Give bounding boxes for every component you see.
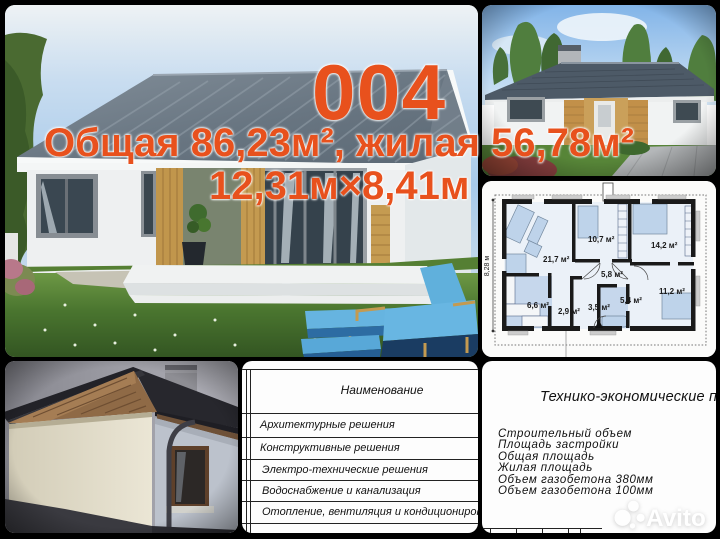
- svg-text:5,4 м²: 5,4 м²: [620, 296, 642, 305]
- svg-text:8,28 м: 8,28 м: [484, 256, 491, 277]
- svg-text:21,7 м²: 21,7 м²: [543, 255, 570, 264]
- svg-text:11,2 м²: 11,2 м²: [659, 287, 685, 296]
- svg-text:3,5 м²: 3,5 м²: [588, 303, 610, 312]
- svg-text:2,9 м²: 2,9 м²: [558, 307, 580, 316]
- svg-text:14,2 м²: 14,2 м²: [651, 241, 678, 250]
- svg-text:6,6 м²: 6,6 м²: [527, 301, 549, 310]
- svg-text:Avito: Avito: [646, 505, 706, 532]
- svg-text:5,8 м²: 5,8 м²: [601, 270, 623, 279]
- svg-text:10,7 м²: 10,7 м²: [588, 235, 615, 244]
